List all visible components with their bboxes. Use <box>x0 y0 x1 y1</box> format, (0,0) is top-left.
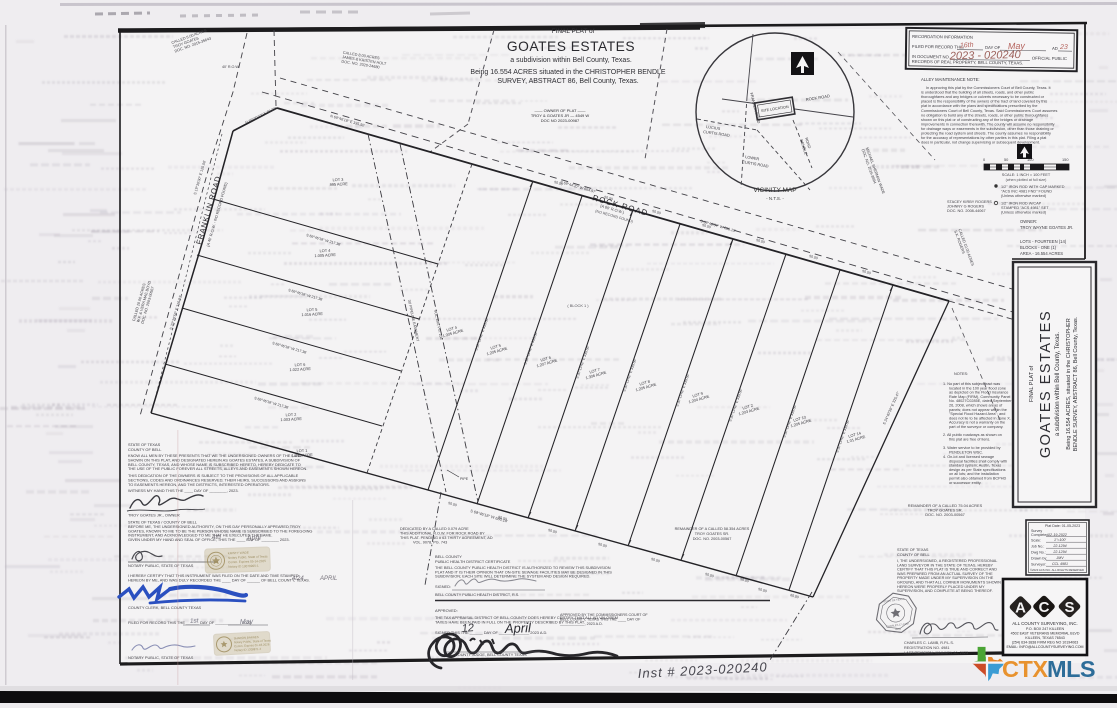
svg-text:DEDICATED BY A CALLED 0.079 AC: DEDICATED BY A CALLED 0.079 ACRE <box>400 527 469 531</box>
svg-text:©2023 ACS INC. ALL RIGHTS RESE: ©2023 ACS INC. ALL RIGHTS RESERVED <box>1030 568 1084 572</box>
svg-text:NOTARY PUBLIC, STATE OF TEXAS: NOTARY PUBLIC, STATE OF TEXAS <box>128 655 194 660</box>
svg-text:Drawn by:: Drawn by: <box>1031 557 1047 561</box>
svg-text:THIS ADDITIONAL R.O.W. FOR ROC: THIS ADDITIONAL R.O.W. FOR ROCK ROAD BY <box>400 532 485 536</box>
svg-text:22-1294: 22-1294 <box>1052 544 1066 548</box>
svg-text:FINAL PLAT of: FINAL PLAT of <box>552 28 595 35</box>
svg-text:Being 16.554 ACRES, situated i: Being 16.554 ACRES, situated in the CHRI… <box>1066 318 1072 449</box>
svg-text:CCL 4981: CCL 4981 <box>1052 562 1068 566</box>
svg-text:COUNTY JUDGE, BELL COUNTY TEXA: COUNTY JUDGE, BELL COUNTY TEXAS <box>455 653 527 657</box>
svg-text:____________, 2023 A.D.: ____________, 2023 A.D. <box>559 622 603 626</box>
svg-text:plat in accordance with the pl: plat in accordance with the plans and sp… <box>921 104 1038 108</box>
svg-text:TROY GOATES SR.: TROY GOATES SR. <box>695 532 729 536</box>
svg-text:COUNTY OF BELL: COUNTY OF BELL <box>128 447 162 452</box>
svg-text:LAST REVISION: JANUARY 30, 20: LAST REVISION: JANUARY 30, 2023 <box>904 651 968 655</box>
svg-text:BELL COUNTY, TEXAS THIS THE __: BELL COUNTY, TEXAS THIS THE ____ DAY OF <box>560 618 641 622</box>
svg-text:ALL COUNTY SURVEYING, INC.: ALL COUNTY SURVEYING, INC. <box>1012 621 1078 626</box>
svg-text:.995 ACRE: .995 ACRE <box>328 181 348 187</box>
svg-text:SCALE: 1 INCH = 100 FEET: SCALE: 1 INCH = 100 FEET <box>1002 173 1051 177</box>
svg-text:Dwg No.:: Dwg No.: <box>1031 551 1046 555</box>
svg-text:TROY GOATES JR., OWNER: TROY GOATES JR., OWNER <box>128 513 180 518</box>
svg-text:Commissioners Court of Bell Co: Commissioners Court of Bell County, Texa… <box>921 109 1057 113</box>
svg-text:Completed:: Completed: <box>1031 533 1049 537</box>
svg-text:C: C <box>1039 599 1050 616</box>
svg-text:THE USE OF THE PUBLIC FOREVER: THE USE OF THE PUBLIC FOREVER ALL STREET… <box>128 466 307 471</box>
svg-text:Scale:: Scale: <box>1031 539 1041 543</box>
svg-text:PIPE: PIPE <box>460 477 469 481</box>
svg-text:GIVEN UNDER MY HAND AND SEAL O: GIVEN UNDER MY HAND AND SEAL OF OFFICE, … <box>128 537 290 542</box>
svg-text:12-19-2022: 12-19-2022 <box>1048 533 1067 537</box>
svg-text:(Unless otherwise marked): (Unless otherwise marked) <box>1001 211 1047 215</box>
svg-text:TROY WAYNE GOATES JR.: TROY WAYNE GOATES JR. <box>1020 225 1073 230</box>
svg-text:NOTARY PUBLIC, STATE OF TEXAS: NOTARY PUBLIC, STATE OF TEXAS <box>128 563 194 568</box>
svg-text:thoroughfares and any bridges: thoroughfares and any bridges or culvert… <box>921 95 1045 99</box>
svg-text:1"=100': 1"=100' <box>1054 538 1066 542</box>
svg-text:for the accuracy of representa: for the accuracy of representations by o… <box>921 136 1047 140</box>
svg-text:STACEY KIRBY ROGERS: STACEY KIRBY ROGERS <box>947 200 992 204</box>
svg-text:STATE OF TEXAS: STATE OF TEXAS <box>897 548 929 552</box>
svg-text:SIGNED:: SIGNED: <box>435 584 451 589</box>
svg-text:4502 EAST VETERANS MEMORIAL BL: 4502 EAST VETERANS MEMORIAL BLVD <box>1011 632 1080 636</box>
svg-text:(Unless otherwise marked): (Unless otherwise marked) <box>1001 194 1047 198</box>
svg-text:16th: 16th <box>960 42 974 50</box>
svg-text:PUBLIC HEALTH DISTRICT CERTIFI: PUBLIC HEALTH DISTRICT CERTIFICATE <box>435 559 511 564</box>
svg-text:PENDLETON WSC.: PENDLETON WSC. <box>949 450 983 454</box>
svg-text:DOC. NO. 2008-44067: DOC. NO. 2008-44067 <box>947 209 986 213</box>
svg-text:THIS PLAT. PENDING # 63 THIRTY: THIS PLAT. PENDING # 63 THIRTY AGREEMENT… <box>400 536 493 540</box>
svg-text:part of the surveyor or compan: part of the surveyor or company. <box>949 425 1003 429</box>
svg-text:a subdivision within Bell Coun: a subdivision within Bell County, Texas. <box>510 57 632 64</box>
svg-text:protecting the road system and: protecting the road system and streets. … <box>921 132 1051 136</box>
svg-text:(254) 634-3838 FIRM REG NO 10: (254) 634-3838 FIRM REG NO 10194063 <box>1012 641 1079 645</box>
svg-text:BELL COUNTY PUBLIC HEALTH DIST: BELL COUNTY PUBLIC HEALTH DISTRICT, R.S. <box>435 593 519 597</box>
svg-text:( BLOCK 1 ): ( BLOCK 1 ) <box>567 303 589 308</box>
svg-text:MLS: MLS <box>1047 656 1095 682</box>
svg-text:A: A <box>1015 600 1026 617</box>
svg-text:40' R.O.W.: 40' R.O.W. <box>222 65 240 69</box>
svg-text:for drainage ways or easements: for drainage ways or easements in the su… <box>921 127 1054 131</box>
svg-text:SUBDIVISION; EACH SITE WILL DE: SUBDIVISION; EACH SITE WILL DETERMINE TH… <box>435 574 590 579</box>
svg-text:GOATES ESTATES: GOATES ESTATES <box>1038 310 1054 458</box>
svg-text:SURVEY, ABSTRACT 86, Bell Coun: SURVEY, ABSTRACT 86, Bell County, Texas. <box>497 78 638 85</box>
svg-text:APPROVED:: APPROVED: <box>435 608 458 613</box>
svg-text:April: April <box>246 534 262 542</box>
svg-text:HEREON BY ME, AND WAS DULY REC: HEREON BY ME, AND WAS DULY RECORDED THE … <box>128 577 310 582</box>
svg-text:ALLEY MAINTENANCE NOTE:: ALLEY MAINTENANCE NOTE: <box>921 77 980 82</box>
svg-text:COUNTY CLERK, BELL COUNTY TEXA: COUNTY CLERK, BELL COUNTY TEXAS <box>128 605 202 610</box>
svg-text:GOATES ESTATES: GOATES ESTATES <box>507 39 635 54</box>
svg-text:P.O. BOX 247 KILLEEN: P.O. BOX 247 KILLEEN <box>1026 627 1064 631</box>
svg-text:DOC. NO. 2003-00567: DOC. NO. 2003-00567 <box>925 512 965 517</box>
svg-text:12: 12 <box>461 622 474 635</box>
svg-text:BLOCKS - ONE (1): BLOCKS - ONE (1) <box>1020 245 1057 250</box>
svg-text:FINAL PLAT of: FINAL PLAT of <box>1029 365 1035 402</box>
svg-text:4/24: 4/24 <box>292 576 304 582</box>
svg-text:Job No.:: Job No.: <box>1031 545 1044 549</box>
svg-text:JMV: JMV <box>1055 556 1064 560</box>
svg-text:- N.T.S. -: - N.T.S. - <box>766 196 784 201</box>
svg-text:AREA - 16.554 ACRES: AREA - 16.554 ACRES <box>1020 251 1063 256</box>
svg-text:150: 150 <box>1062 157 1069 162</box>
svg-text:23: 23 <box>1059 44 1068 51</box>
svg-text:improvements in connection the: improvements in connection therewith. Th… <box>921 122 1055 126</box>
svg-text:CHARLES C. LAMB, R.P.L.S.: CHARLES C. LAMB, R.P.L.S. <box>904 641 954 645</box>
svg-text:no obligation to build any of: no obligation to build any of the street… <box>921 113 1048 117</box>
svg-text:DOC. NO. 2003-00567: DOC. NO. 2003-00567 <box>693 537 732 541</box>
svg-text:WITNESS MY HAND THIS THE ____: WITNESS MY HAND THIS THE ____ DAY OF ___… <box>128 488 239 493</box>
svg-text:VICINITY MAP: VICINITY MAP <box>753 187 796 194</box>
svg-text:2023 - 020240: 2023 - 020240 <box>949 49 1022 63</box>
svg-text:SUPERVISION, AND COMPLETE AT B: SUPERVISION, AND COMPLETE AT BEING THERE… <box>897 589 993 593</box>
svg-text:REMAINDER OF A CALLED 58.354 A: REMAINDER OF A CALLED 58.354 ACRES <box>675 527 750 531</box>
svg-text:RECORDATION INFORMATION: RECORDATION INFORMATION <box>912 34 973 40</box>
svg-text:S: S <box>1064 599 1074 616</box>
svg-text:1/2" IRON ROD W/CAP: 1/2" IRON ROD W/CAP <box>1001 202 1042 206</box>
svg-text:is understood that the buildin: is understood that the building of all s… <box>921 91 1034 95</box>
svg-text:Plat Date: 01-05-2023: Plat Date: 01-05-2023 <box>1045 524 1080 528</box>
svg-text:4th: 4th <box>212 533 222 541</box>
svg-text:REGISTRATION NO. 4981: REGISTRATION NO. 4981 <box>904 646 950 650</box>
svg-text:Surveyor:: Surveyor: <box>1031 563 1046 567</box>
svg-text:(when plotted at full size): (when plotted at full size) <box>1006 178 1047 182</box>
svg-text:STAMPED "ACS 4981" SET: STAMPED "ACS 4981" SET <box>1001 206 1049 210</box>
svg-text:COUNTY OF BELL: COUNTY OF BELL <box>897 553 930 557</box>
svg-text:or successor entity.: or successor entity. <box>949 481 981 485</box>
svg-text:1/2" IRON ROD WITH CAP MARKED: 1/2" IRON ROD WITH CAP MARKED <box>1001 185 1065 189</box>
svg-text:BENDLE SURVEY, ABSTRACT 86, Be: BENDLE SURVEY, ABSTRACT 86, Bell County,… <box>1073 316 1079 451</box>
svg-text:April: April <box>504 620 533 636</box>
svg-text:TO EASEMENTS HEREON, AND THE D: TO EASEMENTS HEREON, AND THE DISTRICTS, … <box>128 482 270 487</box>
svg-text:NOTES:: NOTES: <box>954 372 968 376</box>
svg-text:placed is the responsibility o: placed is the responsibility of the owne… <box>921 100 1047 104</box>
svg-text:LOTS - FOURTEEN (14): LOTS - FOURTEEN (14) <box>1020 239 1067 244</box>
svg-text:KILLEEN, TEXAS 76543: KILLEEN, TEXAS 76543 <box>1025 636 1065 640</box>
svg-text:DOC NO 2023-00987: DOC NO 2023-00987 <box>541 118 580 123</box>
svg-text:OWNER:: OWNER: <box>1020 219 1037 224</box>
svg-text:shown on this plat or of const: shown on this plat or of constructing an… <box>921 118 1033 122</box>
svg-text:this plat are free of liens.: this plat are free of liens. <box>949 437 990 441</box>
svg-text:JOHNNY G ROGERS: JOHNNY G ROGERS <box>947 205 985 209</box>
svg-text:EMAIL: INFO@ALLCOUNTYSURVEYING: EMAIL: INFO@ALLCOUNTYSURVEYING.COM <box>1006 645 1083 649</box>
svg-text:22-1294: 22-1294 <box>1052 550 1066 554</box>
svg-text:In approving this plat by the: In approving this plat by the Commission… <box>926 86 1052 90</box>
svg-text:a subdivision within Bell Coun: a subdivision within Bell County, Texas. <box>1055 332 1061 436</box>
svg-text:AD: AD <box>1052 46 1058 51</box>
svg-text:100: 100 <box>1027 157 1034 162</box>
svg-text:CTX: CTX <box>1002 656 1048 682</box>
svg-text:Being 16.554 ACRES situated in: Being 16.554 ACRES situated in the CHRIS… <box>470 69 666 76</box>
svg-text:OFFICIAL PUBLIC: OFFICIAL PUBLIC <box>1032 56 1067 61</box>
svg-text:"ACS INC 4981 FND" FOUND: "ACS INC 4981 FND" FOUND <box>1001 190 1052 194</box>
svg-text:APPROVED BY THE COMMISSIONERS: APPROVED BY THE COMMISSIONERS COURT OF <box>560 613 648 617</box>
svg-text:APRIL: APRIL <box>319 576 337 582</box>
svg-text:FILED FOR RECORD THIS: FILED FOR RECORD THIS <box>912 44 964 50</box>
svg-text:VOL. 9078, PG. 743: VOL. 9078, PG. 743 <box>413 541 447 545</box>
